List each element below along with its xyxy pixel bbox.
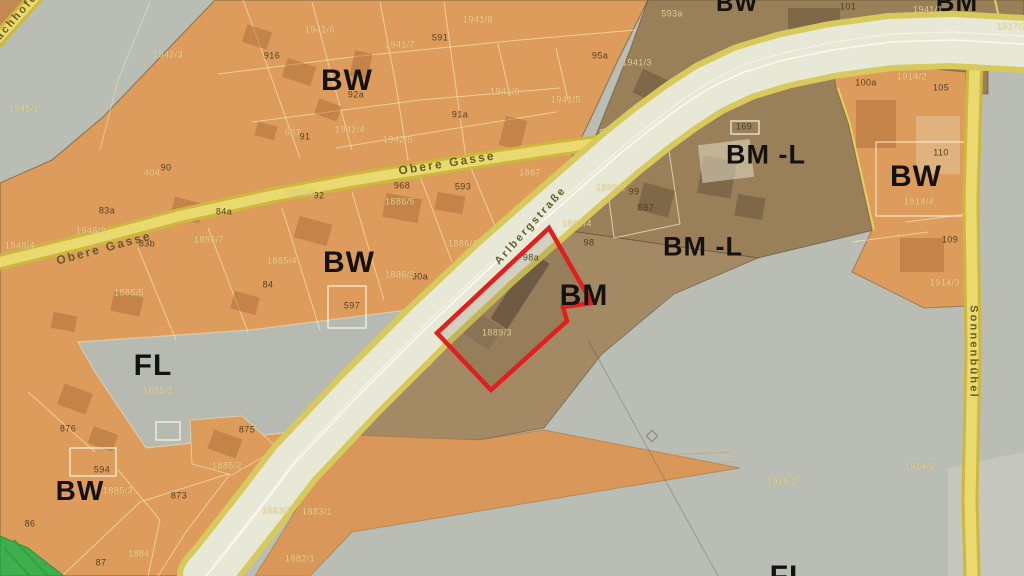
zone-gray-light <box>948 452 1024 576</box>
map-viewport[interactable]: BWBWBMBM -LBM -LBWBWBMFLBWFL91659195a91a… <box>0 0 1024 576</box>
road-sonnenbuehel <box>970 58 975 576</box>
map-graphic <box>0 0 1024 576</box>
